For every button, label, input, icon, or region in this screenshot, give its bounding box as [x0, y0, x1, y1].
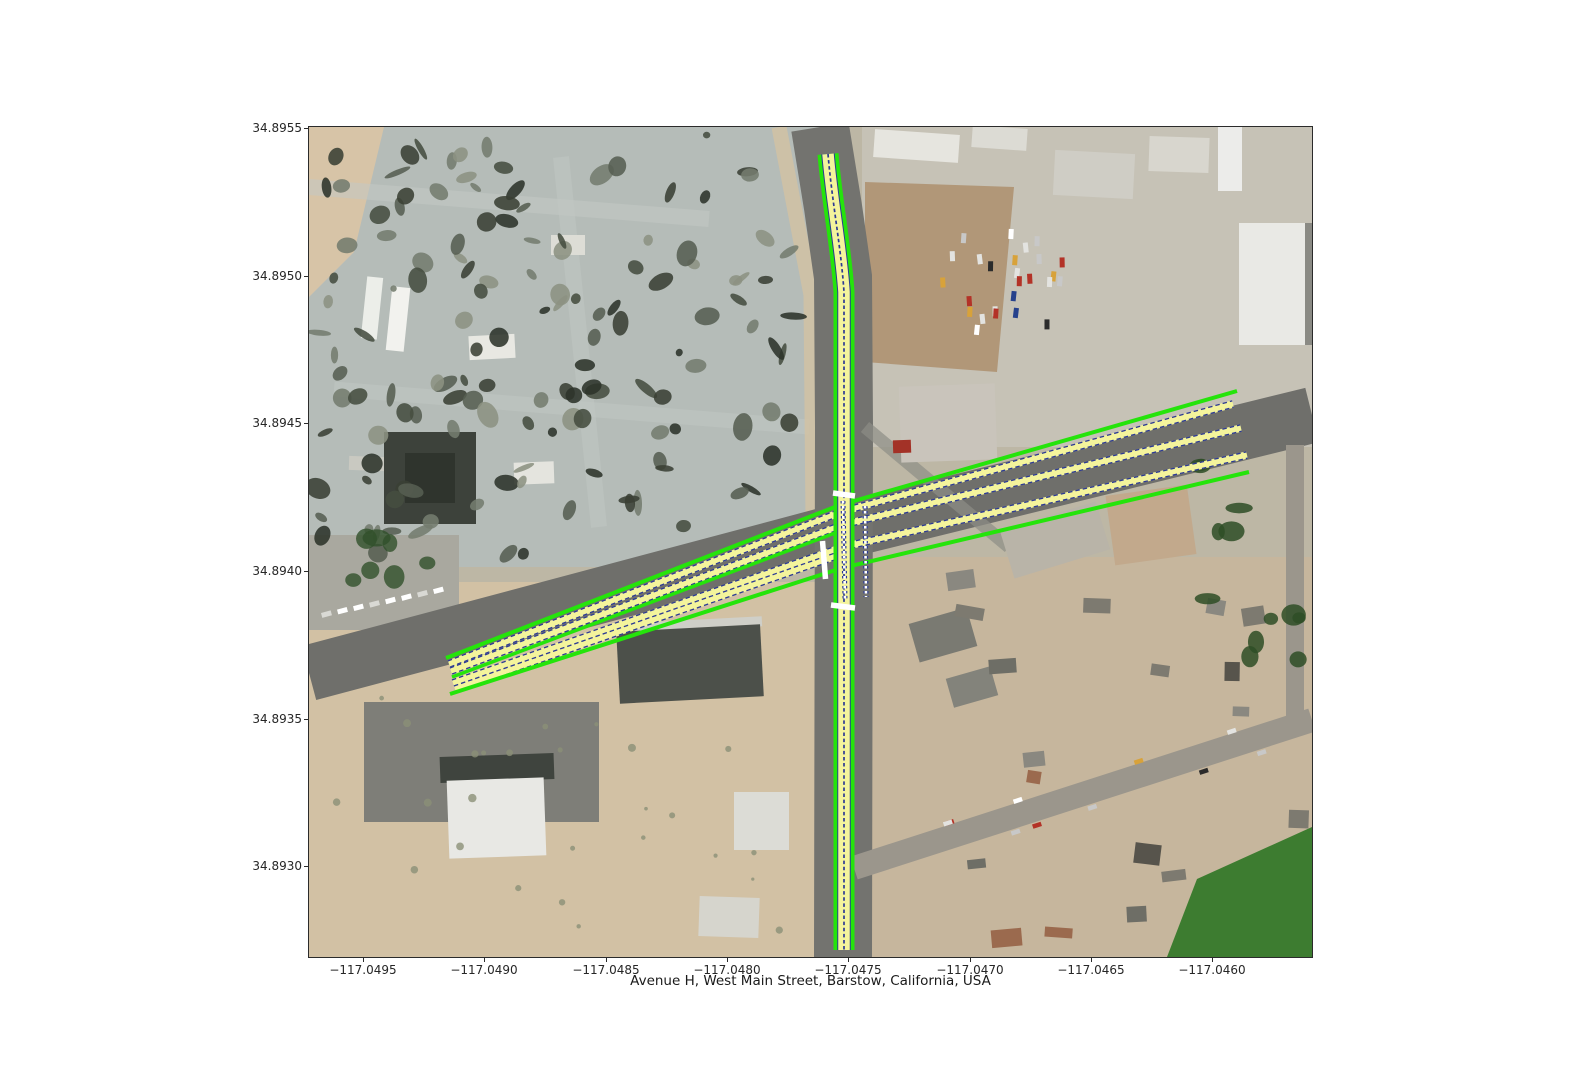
y-tick-label: 34.8930: [230, 858, 302, 874]
y-tick-mark: [304, 423, 308, 424]
y-tick-label: 34.8940: [230, 563, 302, 579]
y-tick-mark: [304, 276, 308, 277]
y-tick-mark: [304, 719, 308, 720]
axis-caption: Avenue H, West Main Street, Barstow, Cal…: [309, 973, 1312, 989]
satellite-map: [309, 127, 1312, 957]
y-tick-label: 34.8945: [230, 415, 302, 431]
y-tick-label: 34.8935: [230, 711, 302, 727]
y-tick-mark: [304, 571, 308, 572]
matplotlib-figure: 34.8955 34.8950 34.8945 34.8940 34.8935 …: [0, 0, 1580, 1080]
y-tick-mark: [304, 866, 308, 867]
map-plot-area: [309, 127, 1312, 957]
y-tick-label: 34.8950: [230, 268, 302, 284]
y-tick-mark: [304, 128, 308, 129]
y-tick-label: 34.8955: [230, 120, 302, 136]
